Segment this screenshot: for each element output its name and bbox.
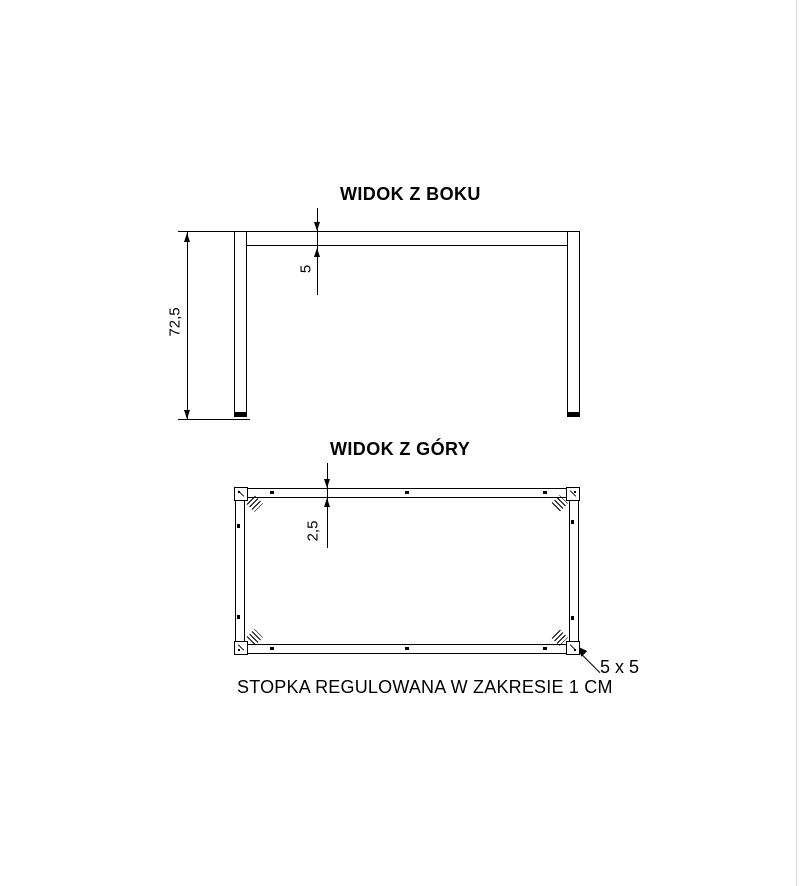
hole-mark	[405, 647, 409, 650]
beam-thickness-dimension-label: 5	[298, 265, 315, 273]
corner-leg-top-left	[234, 487, 248, 501]
hole-mark	[571, 520, 574, 524]
leader-line	[581, 654, 600, 673]
corner-dot-icon	[574, 491, 576, 493]
top-view-title: WIDOK Z GÓRY	[330, 439, 470, 460]
corner-leg-bottom-left	[234, 641, 248, 655]
corner-leg-top-right	[566, 487, 580, 501]
dim-arrow-up-icon	[324, 498, 330, 507]
dim-arrow-up-icon	[184, 233, 190, 242]
side-right-foot	[567, 412, 580, 417]
corner-dot-icon	[574, 649, 576, 651]
side-left-foot	[234, 412, 247, 417]
dim-arrow-down-icon	[324, 479, 330, 488]
hole-mark	[571, 616, 574, 620]
top-rail-left	[235, 501, 245, 641]
hole-mark	[237, 524, 240, 528]
side-bottom-extension-line	[178, 419, 250, 420]
leg-section-label: 5 x 5	[600, 657, 639, 678]
side-beam-bottom-line	[247, 245, 567, 246]
image-edge-border	[796, 0, 797, 886]
side-right-leg	[567, 231, 580, 412]
corner-dot-icon	[238, 491, 240, 493]
hole-mark	[237, 615, 240, 619]
caption: STOPKA REGULOWANA W ZAKRESIE 1 CM	[237, 677, 613, 698]
dim-arrow-down-icon	[314, 222, 320, 231]
side-view-title: WIDOK Z BOKU	[340, 184, 480, 205]
hole-mark	[543, 491, 547, 494]
corner-dot-icon	[238, 649, 240, 651]
dim-arrow-up-icon	[314, 248, 320, 257]
side-left-leg	[234, 231, 247, 412]
hole-mark	[405, 491, 409, 494]
drawing-canvas: WIDOK Z BOKU 72,5 5 WIDOK Z GÓRY	[0, 0, 800, 886]
side-height-dimension-line	[187, 232, 188, 419]
hole-mark	[270, 491, 274, 494]
hole-mark	[543, 647, 547, 650]
height-dimension-label: 72,5	[167, 307, 184, 336]
rail-width-dimension-label: 2,5	[305, 521, 322, 542]
hole-mark	[270, 647, 274, 650]
corner-leg-bottom-right	[566, 641, 580, 655]
dim-arrow-down-icon	[184, 410, 190, 419]
